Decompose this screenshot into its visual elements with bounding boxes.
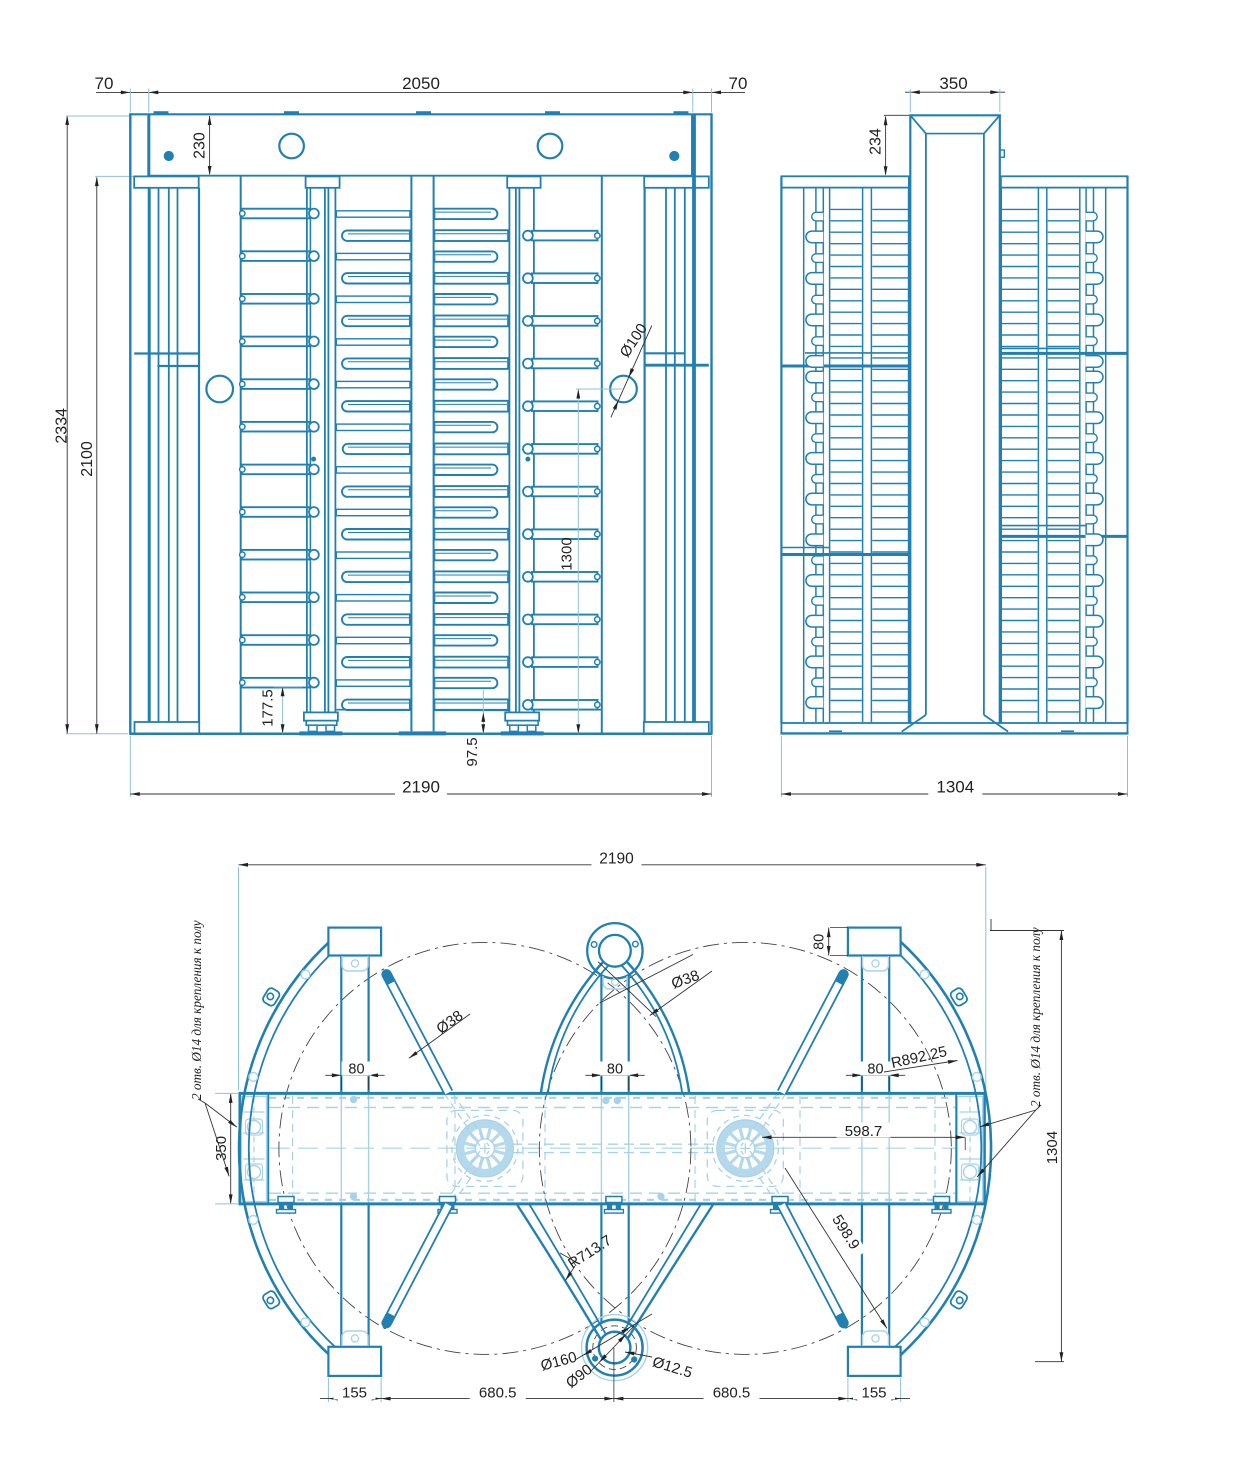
svg-text:97.5: 97.5 — [464, 737, 481, 766]
svg-text:350: 350 — [939, 74, 967, 93]
svg-text:155: 155 — [861, 1384, 886, 1401]
svg-text:1304: 1304 — [936, 778, 974, 797]
svg-text:2190: 2190 — [402, 778, 440, 797]
svg-text:230: 230 — [192, 132, 209, 159]
svg-text:680.5: 680.5 — [479, 1384, 517, 1401]
svg-text:1304: 1304 — [1044, 1131, 1061, 1164]
svg-text:80: 80 — [867, 1062, 883, 1078]
svg-text:2 отв. Ø14 для крепления к пол: 2 отв. Ø14 для крепления к полу — [189, 920, 204, 1100]
svg-text:2334: 2334 — [54, 408, 71, 444]
svg-text:680.5: 680.5 — [713, 1384, 751, 1401]
svg-text:80: 80 — [348, 1062, 364, 1078]
svg-text:350: 350 — [213, 1136, 230, 1161]
svg-text:80: 80 — [607, 1062, 623, 1078]
svg-text:177.5: 177.5 — [260, 689, 277, 727]
svg-text:155: 155 — [342, 1384, 367, 1401]
svg-text:2 отв. Ø14 для крепления к пол: 2 отв. Ø14 для крепления к полу — [1028, 927, 1043, 1107]
svg-text:70: 70 — [95, 74, 114, 93]
svg-text:2050: 2050 — [402, 74, 440, 93]
svg-text:1300: 1300 — [559, 537, 576, 570]
svg-text:80: 80 — [812, 934, 828, 950]
svg-text:2100: 2100 — [79, 441, 96, 477]
svg-text:2190: 2190 — [599, 851, 634, 868]
svg-text:598.7: 598.7 — [845, 1123, 883, 1140]
svg-text:70: 70 — [729, 74, 748, 93]
svg-text:234: 234 — [868, 128, 885, 155]
